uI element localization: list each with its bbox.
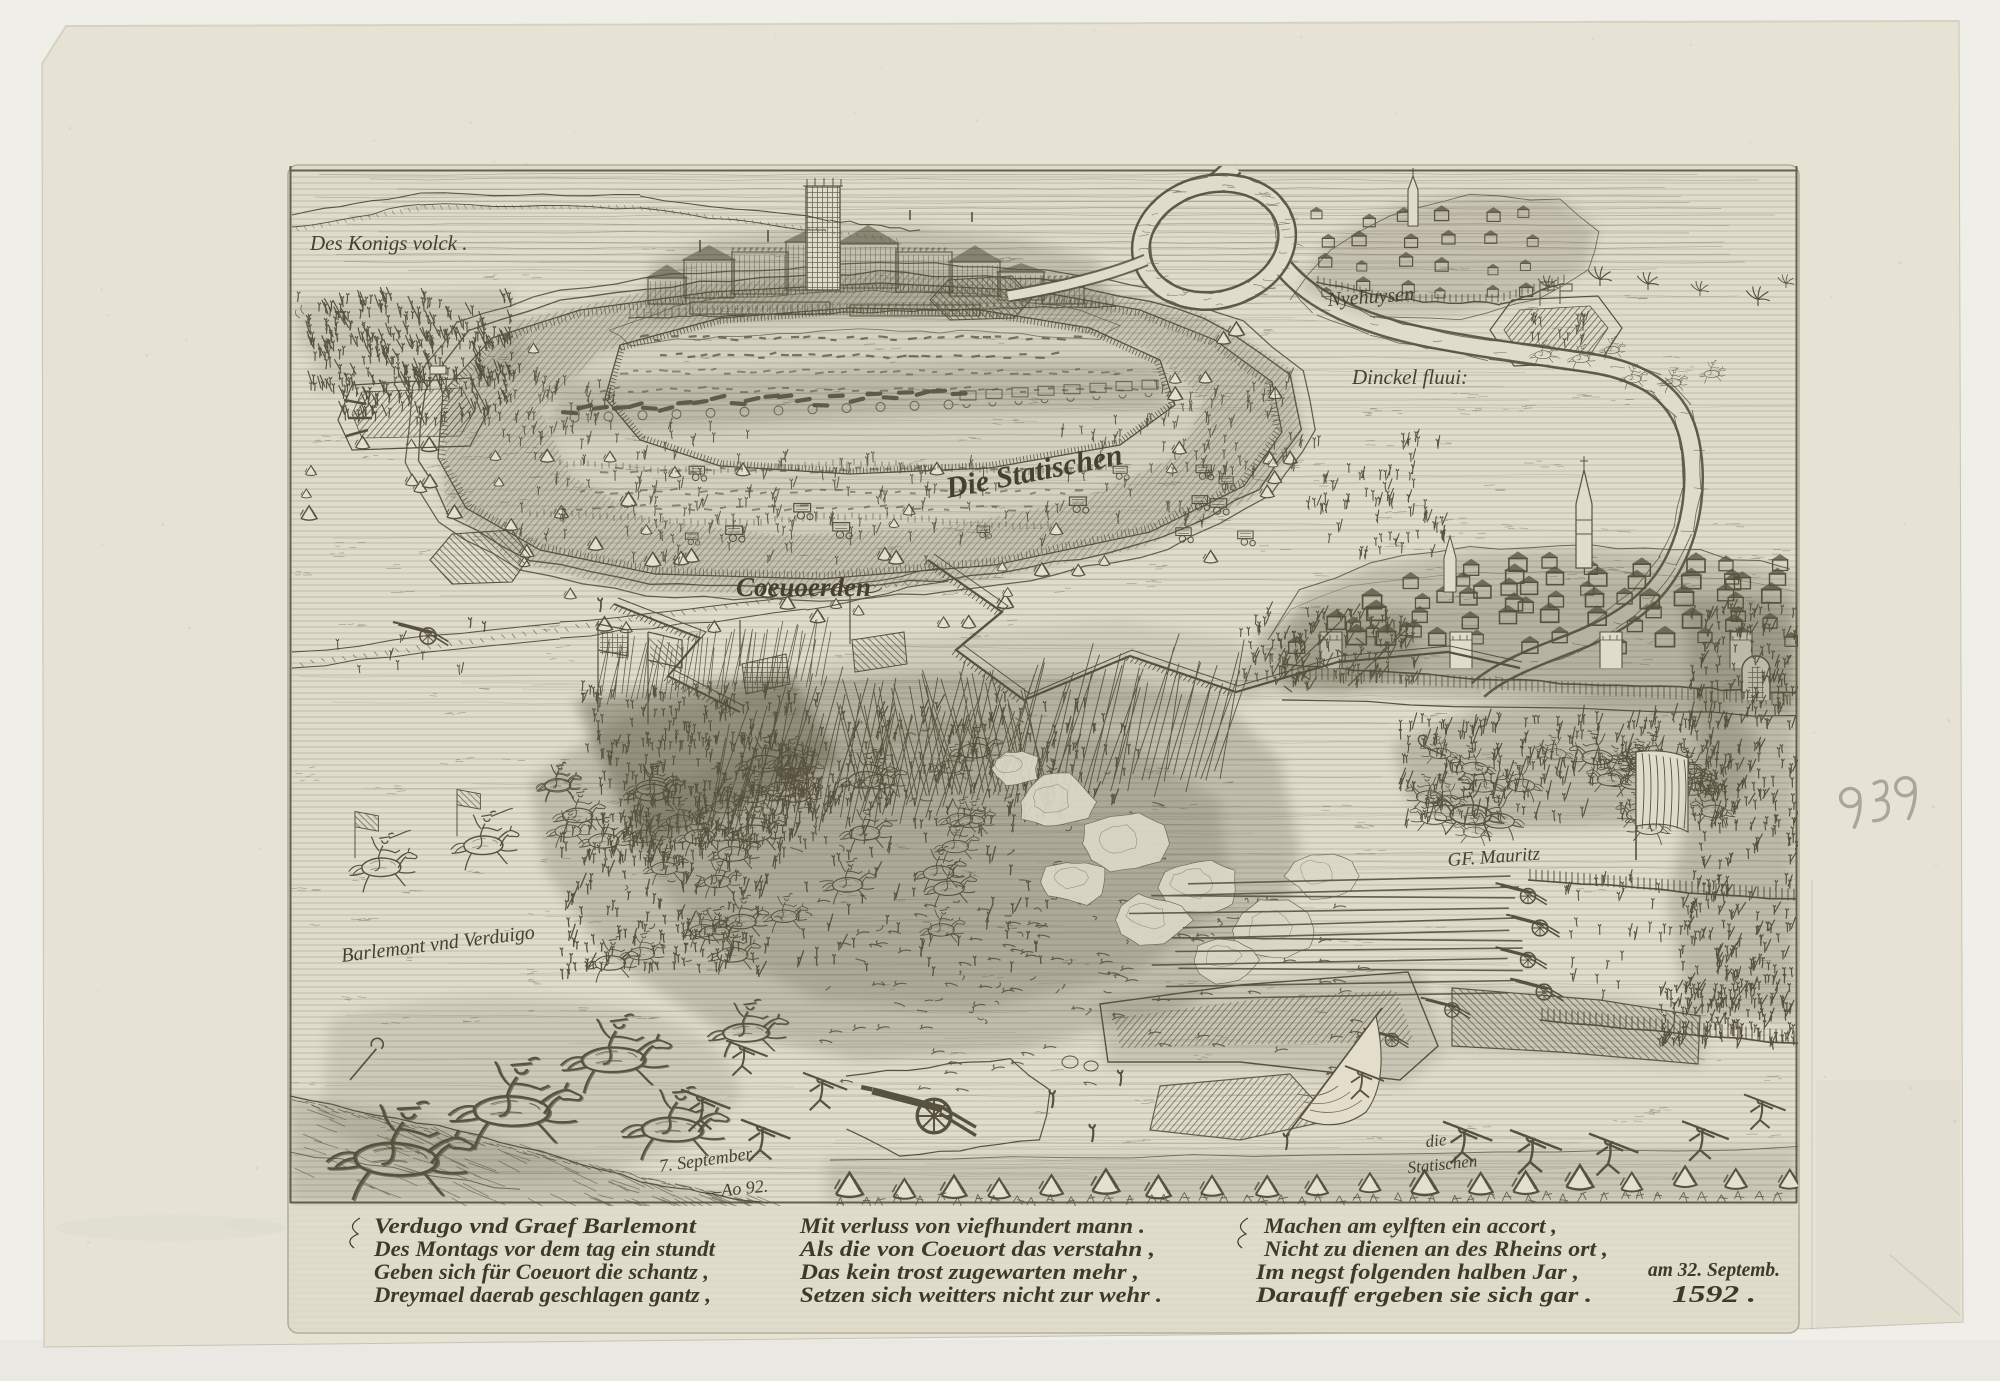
svg-text:am 32. Septemb.: am 32. Septemb. <box>1648 1259 1780 1281</box>
svg-text:Verdugo vnd Graef Barlemont: Verdugo vnd Graef Barlemont <box>374 1213 697 1238</box>
svg-text:Des Konigs volck .: Des Konigs volck . <box>309 231 467 255</box>
svg-text:Nicht zu dienen an des Rheins: Nicht zu dienen an des Rheins ort , <box>1263 1236 1608 1261</box>
svg-text:Coeuoerden: Coeuoerden <box>736 572 871 602</box>
svg-text:Des Montags vor dem tag ein st: Des Montags vor dem tag ein stundt <box>373 1236 716 1261</box>
svg-text:Dreymael daerab geschlagen gan: Dreymael daerab geschlagen gantz , <box>373 1282 711 1307</box>
svg-text:Geben sich für Coeuort die sch: Geben sich für Coeuort die schantz , <box>374 1259 709 1284</box>
svg-text:Im negst folgenden halben Jar: Im negst folgenden halben Jar , <box>1255 1259 1579 1284</box>
svg-text:Als die von Coeuort das versta: Als die von Coeuort das verstahn , <box>798 1236 1155 1261</box>
svg-text:Setzen sich weitters nicht zur: Setzen sich weitters nicht zur wehr . <box>800 1282 1162 1307</box>
svg-text:Machen am eylften ein accort ,: Machen am eylften ein accort , <box>1263 1213 1557 1238</box>
svg-text:Mit verluss von viefhundert ma: Mit verluss von viefhundert mann . <box>799 1213 1145 1238</box>
svg-text:Darauff ergeben sie sich gar .: Darauff ergeben sie sich gar . <box>1255 1282 1592 1307</box>
svg-text:1592 .: 1592 . <box>1672 1282 1756 1308</box>
svg-text:Das kein trost zugewarten mehr: Das kein trost zugewarten mehr , <box>799 1259 1139 1284</box>
svg-text:Dinckel fluui:: Dinckel fluui: <box>1351 365 1468 389</box>
svg-text:die: die <box>1425 1130 1448 1151</box>
